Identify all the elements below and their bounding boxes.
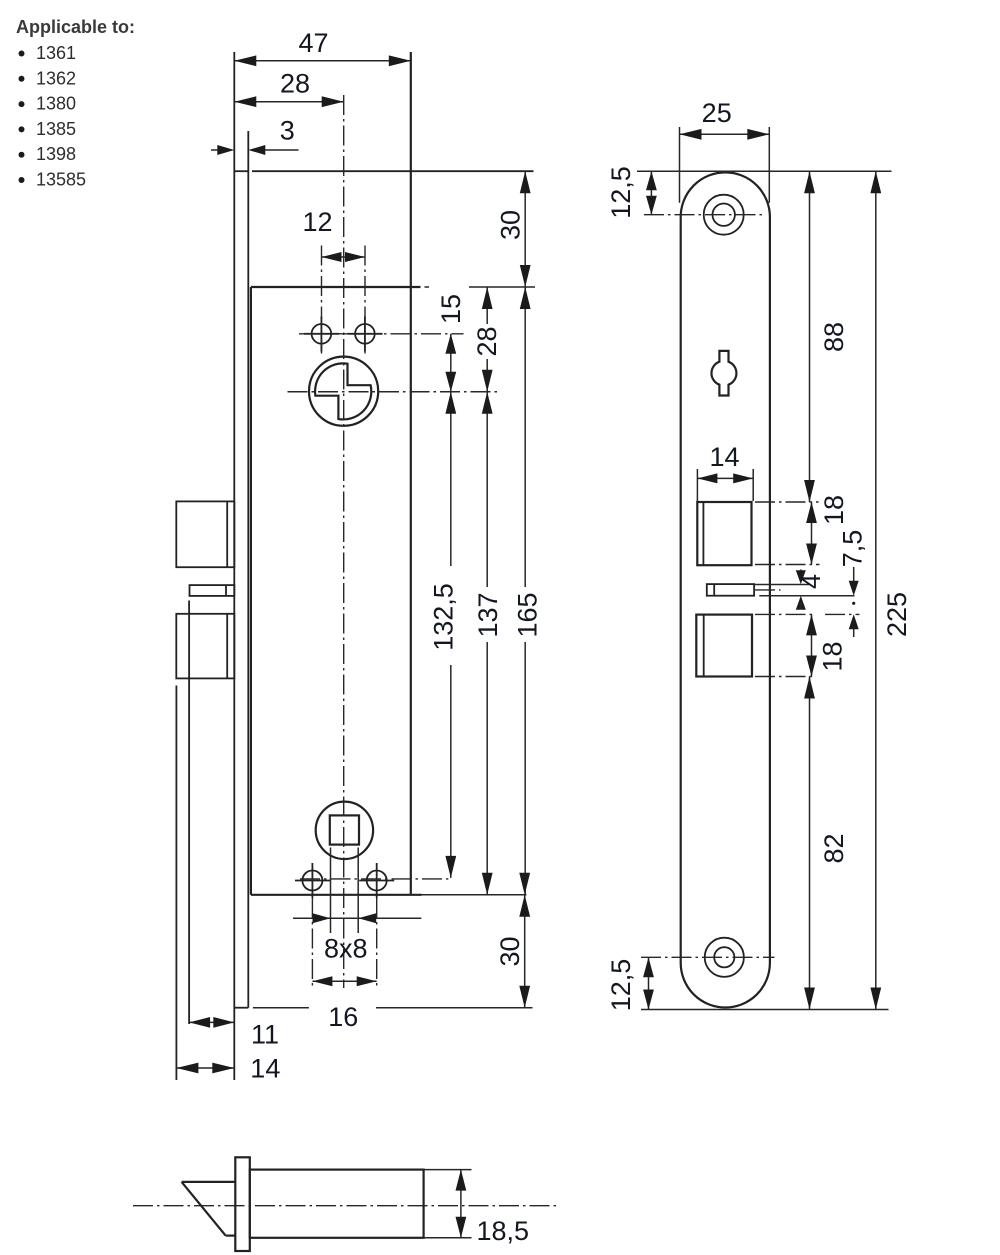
svg-text:3: 3	[280, 116, 295, 146]
svg-text:8x8: 8x8	[324, 934, 368, 964]
svg-text:18: 18	[819, 495, 849, 525]
svg-text:16: 16	[328, 1002, 358, 1032]
svg-text:18: 18	[818, 641, 848, 671]
svg-text:225: 225	[882, 592, 912, 637]
svg-text:30: 30	[496, 210, 526, 240]
svg-text:13585: 13585	[36, 170, 86, 190]
svg-text:137: 137	[473, 592, 503, 637]
svg-text:25: 25	[702, 98, 732, 128]
svg-text:132,5: 132,5	[429, 583, 459, 651]
svg-text:28: 28	[472, 326, 502, 356]
svg-text:12,5: 12,5	[606, 959, 636, 1012]
svg-text:12,5: 12,5	[606, 166, 636, 219]
svg-text:11: 11	[251, 1020, 279, 1050]
svg-text:12: 12	[302, 207, 332, 237]
svg-text:14: 14	[250, 1054, 280, 1084]
svg-text:30: 30	[495, 936, 525, 966]
svg-text:Applicable to:: Applicable to:	[16, 17, 135, 37]
svg-text:1385: 1385	[36, 119, 76, 139]
svg-text:7,5: 7,5	[838, 530, 868, 568]
svg-text:88: 88	[819, 322, 849, 352]
svg-text:82: 82	[819, 833, 849, 863]
svg-text:15: 15	[436, 294, 466, 324]
svg-text:4: 4	[796, 574, 826, 589]
svg-text:47: 47	[298, 28, 328, 58]
svg-text:165: 165	[513, 592, 543, 637]
svg-text:1361: 1361	[36, 43, 76, 63]
svg-text:1362: 1362	[36, 68, 76, 88]
svg-text:28: 28	[280, 69, 310, 99]
svg-text:1398: 1398	[36, 144, 76, 164]
svg-text:1380: 1380	[36, 94, 76, 114]
svg-text:18,5: 18,5	[477, 1216, 530, 1246]
svg-text:14: 14	[709, 442, 739, 472]
